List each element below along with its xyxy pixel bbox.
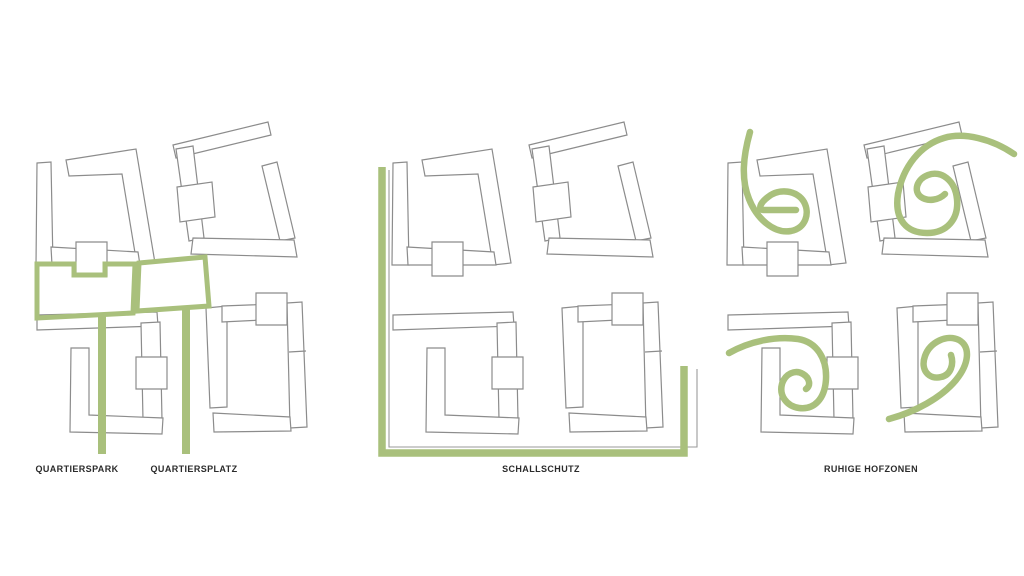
label-quartiersplatz: QUARTIERSPLATZ xyxy=(151,464,238,474)
courtyard-spiral-top-left xyxy=(744,132,807,231)
label-ruhige-hofzonen: RUHIGE HOFZONEN xyxy=(824,464,918,474)
panel-schallschutz: SCHALLSCHUTZ xyxy=(382,122,697,474)
panel-ruhige-hofzonen: RUHIGE HOFZONEN xyxy=(727,122,1014,474)
label-schallschutz: SCHALLSCHUTZ xyxy=(502,464,580,474)
diagram-page: QUARTIERSPARK QUARTIERSPLATZ SCHALLSCHUT… xyxy=(0,0,1024,576)
site-plan xyxy=(727,122,998,434)
label-quartierspark: QUARTIERSPARK xyxy=(35,464,118,474)
panel-quartier-open-spaces: QUARTIERSPARK QUARTIERSPLATZ xyxy=(35,122,307,474)
site-plan xyxy=(36,122,307,434)
site-plan xyxy=(392,122,663,434)
courtyard-spiral-top-right xyxy=(897,136,1014,233)
quartiersplatz-outline xyxy=(137,257,209,311)
diagram-canvas: QUARTIERSPARK QUARTIERSPLATZ SCHALLSCHUT… xyxy=(0,0,1024,576)
